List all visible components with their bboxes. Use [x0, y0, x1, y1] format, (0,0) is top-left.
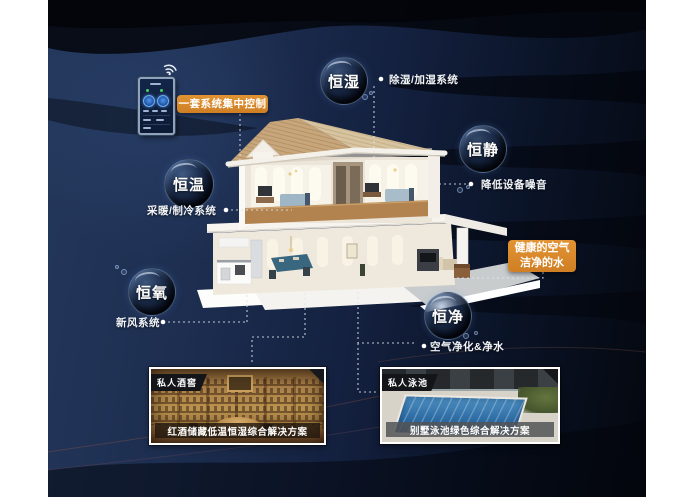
- panel-readout: [152, 110, 158, 112]
- note-heating-cooling-system: 采暖/制冷系统: [147, 203, 216, 218]
- panel-dial: [157, 95, 169, 107]
- healthy-air-callout: 健康的空气 洁净的水: [508, 240, 576, 272]
- panel-row: [156, 119, 164, 121]
- photo-corner-fold: [309, 369, 324, 384]
- wall-control-panel: [138, 77, 175, 135]
- wifi-icon: [160, 60, 178, 76]
- central-control-callout: 一套系统集中控制: [177, 95, 268, 113]
- wine-cellar-photo: 私人酒窖 红酒储藏低温恒湿综合解决方案: [149, 367, 326, 445]
- photo-corner-fold: [543, 369, 558, 384]
- panel-readout: [161, 110, 167, 112]
- bubble-label: 恒温: [173, 174, 205, 195]
- panel-title-bar: [150, 83, 161, 85]
- photo-tag: 私人酒窖: [151, 374, 207, 391]
- panel-row: [143, 119, 151, 121]
- panel-row: [143, 127, 151, 129]
- callout-line1: 健康的空气: [515, 241, 570, 256]
- note-air-water-purification: 空气净化&净水: [430, 339, 504, 354]
- bubble-label: 恒氧: [136, 282, 168, 303]
- central-control-label: 一套系统集中控制: [179, 97, 267, 111]
- photo-tag: 私人泳池: [382, 374, 438, 391]
- bubble-label: 恒净: [432, 306, 464, 327]
- panel-indicator: [160, 89, 163, 92]
- note-fresh-air-system: 新风系统: [116, 315, 160, 330]
- bubble-label: 恒湿: [328, 71, 360, 92]
- bubble-constant-quiet: 恒静: [459, 125, 507, 173]
- bubble-label: 恒静: [467, 139, 499, 160]
- bubble-constant-purity: 恒净: [424, 292, 472, 340]
- panel-indicator: [146, 89, 149, 92]
- panel-divider: [143, 124, 170, 125]
- note-dehumidify-system: 除湿/加湿系统: [389, 72, 458, 87]
- bubble-constant-temperature: 恒温: [164, 159, 214, 209]
- photo-caption: 别墅泳池绿色综合解决方案: [386, 422, 554, 437]
- panel-dial: [143, 95, 155, 107]
- infographic-stage: 一套系统集中控制 恒湿 恒静 恒温 恒氧 恒净 除湿/加湿系统 降低设备噪音 采…: [0, 0, 700, 497]
- panel-readout: [143, 110, 149, 112]
- note-noise-reduction: 降低设备噪音: [481, 177, 547, 192]
- bubble-constant-oxygen: 恒氧: [128, 268, 176, 316]
- callout-line2: 洁净的水: [520, 256, 564, 271]
- photo-caption: 红酒储藏低温恒湿综合解决方案: [155, 423, 320, 438]
- bubble-constant-humidity: 恒湿: [320, 57, 368, 105]
- pool-photo: 私人泳池 别墅泳池绿色综合解决方案: [380, 367, 560, 444]
- panel-divider: [143, 115, 170, 116]
